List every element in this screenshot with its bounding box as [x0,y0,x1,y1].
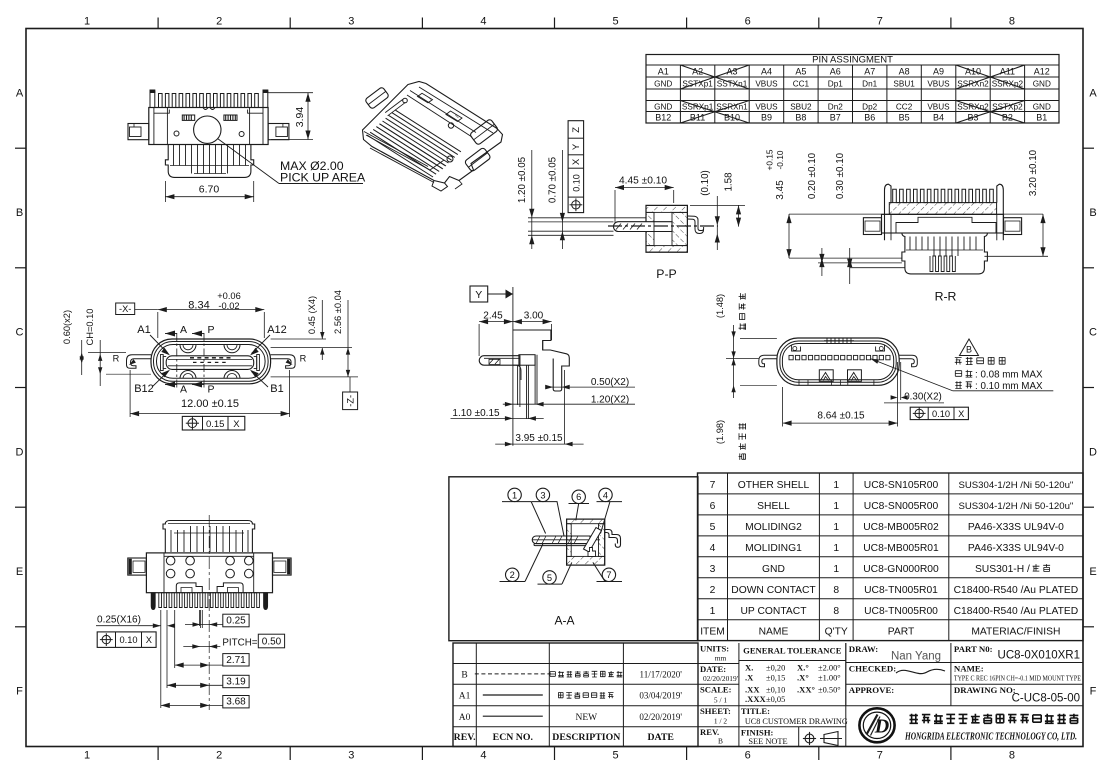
svg-text:±0,05: ±0,05 [766,695,785,704]
svg-text:±1.00°: ±1.00° [818,674,841,683]
svg-text:B1: B1 [1036,113,1047,123]
svg-text:B: B [1089,207,1096,219]
svg-text:.XX: .XX [745,685,760,695]
svg-text:5 / 1: 5 / 1 [714,696,727,705]
svg-text:TITLE:: TITLE: [741,706,770,716]
svg-text:X: X [146,635,152,645]
svg-text:SHEET:: SHEET: [700,706,731,716]
svg-text:Z: Z [571,127,582,133]
svg-text:CC2: CC2 [896,103,913,112]
svg-text:0.30(X2): 0.30(X2) [904,392,942,403]
svg-text:C: C [1089,327,1097,339]
svg-text:-X-: -X- [119,304,131,314]
svg-text:1: 1 [512,490,517,500]
svg-text:.XX°: .XX° [797,685,816,695]
svg-text:±0,15: ±0,15 [766,674,785,683]
svg-text:B7: B7 [830,113,841,123]
svg-text:X: X [958,409,964,419]
svg-text:B8: B8 [795,113,806,123]
svg-text:UC8-0X010XR1: UC8-0X010XR1 [998,650,1080,662]
svg-text:B9: B9 [761,113,772,123]
svg-text:1: 1 [710,606,716,617]
svg-text:5: 5 [613,750,619,762]
svg-text:1: 1 [833,564,839,575]
svg-text:SEE NOTE: SEE NOTE [748,737,787,746]
svg-text:1.20 ±0.05: 1.20 ±0.05 [517,156,528,203]
svg-text:.X°: .X° [797,673,809,683]
svg-text:B1: B1 [270,383,283,395]
svg-text:0.30 ±0.10: 0.30 ±0.10 [835,152,846,199]
svg-text:3.68: 3.68 [226,697,246,708]
svg-text:VBUS: VBUS [755,79,778,88]
svg-text:: 0.08 mm MAX: : 0.08 mm MAX [975,370,1043,381]
svg-text:PITCH=: PITCH= [222,638,257,649]
svg-text:F: F [1090,686,1097,698]
svg-text:A7: A7 [864,66,875,76]
svg-text:X.°: X.° [797,663,809,673]
svg-text:B: B [718,736,723,745]
svg-text:MOLIDING2: MOLIDING2 [745,522,802,533]
svg-text:DRAW:: DRAW: [849,644,878,654]
svg-text:5: 5 [547,573,552,583]
svg-text:11/17/2020': 11/17/2020' [640,669,683,679]
svg-text:Nan Yang: Nan Yang [891,651,941,663]
svg-text:1: 1 [84,750,90,762]
svg-text:7: 7 [710,480,716,491]
svg-text:DATE: DATE [647,732,674,743]
svg-text:6: 6 [745,16,751,28]
svg-text:X: X [571,158,582,165]
svg-text:B: B [16,207,23,219]
svg-text:A4: A4 [761,66,772,76]
svg-text:GND: GND [762,564,785,575]
svg-text:C18400-R540 /Au PLATED: C18400-R540 /Au PLATED [954,585,1079,596]
svg-text:1: 1 [833,543,839,554]
svg-text:NAME: NAME [759,627,789,638]
svg-text:1.10 ±0.15: 1.10 ±0.15 [452,408,500,419]
svg-text:12.00 ±0.15: 12.00 ±0.15 [181,398,239,410]
svg-text:A-A: A-A [554,614,574,628]
svg-text:(1.98): (1.98) [715,420,725,444]
svg-text:1: 1 [833,501,839,512]
svg-text:3: 3 [348,750,354,762]
svg-text:3.95 ±0.15: 3.95 ±0.15 [515,433,563,444]
svg-text:02/20/2019': 02/20/2019' [639,712,682,722]
svg-text:SUS301-H /: SUS301-H / [975,564,1030,575]
svg-text:A: A [16,87,24,99]
svg-text:3: 3 [540,490,545,500]
svg-text:4: 4 [603,490,608,500]
svg-text:B: B [966,345,972,355]
svg-text:1: 1 [833,522,839,533]
svg-text:A6: A6 [830,66,841,76]
svg-text:Y: Y [571,143,582,150]
svg-text:B12: B12 [655,113,671,123]
svg-text:: 0.10 mm MAX: : 0.10 mm MAX [975,381,1043,392]
svg-text:4.45 ±0.10: 4.45 ±0.10 [619,176,667,187]
svg-text:3.19: 3.19 [226,677,246,688]
svg-text:2.56 ±0.04: 2.56 ±0.04 [333,290,343,334]
svg-text:6: 6 [745,750,751,762]
svg-text:A: A [180,384,187,396]
svg-text:REV.: REV. [700,727,719,737]
svg-text:PIN ASSINGMENT: PIN ASSINGMENT [812,54,893,65]
svg-text:A5: A5 [795,66,806,76]
svg-text:UP CONTACT: UP CONTACT [741,606,808,617]
svg-text:2: 2 [216,750,222,762]
svg-text:-0.10: -0.10 [775,150,785,169]
svg-text:(1.48): (1.48) [715,294,725,318]
svg-text:A12: A12 [267,324,287,336]
svg-text:A12: A12 [1034,66,1050,76]
svg-text:MATERIAC/FINISH: MATERIAC/FINISH [971,627,1060,638]
svg-text:B12: B12 [134,383,154,395]
svg-text:HONGRIDA ELECTRONIC TECHNOLOGY: HONGRIDA ELECTRONIC TECHNOLOGY CO, LTD. [904,732,1077,743]
svg-text:R-R: R-R [935,290,957,304]
svg-text:P: P [208,324,215,336]
svg-text:3.20 ±0.10: 3.20 ±0.10 [1028,149,1039,196]
svg-text:C: C [16,327,24,339]
svg-text:0.15: 0.15 [206,419,225,430]
svg-text:PART: PART [888,627,915,638]
svg-text:SCALE:: SCALE: [700,685,732,695]
svg-text:CC1: CC1 [793,79,810,88]
svg-text:C-UC8-05-00: C-UC8-05-00 [1012,693,1080,705]
svg-text:(0.10): (0.10) [700,170,711,196]
svg-text:8: 8 [1009,16,1015,28]
svg-text:A0: A0 [459,713,471,723]
svg-text:MOLIDING1: MOLIDING1 [745,543,802,554]
svg-text:D: D [1089,446,1097,458]
svg-text:SUS304-1/2H /Ni 50-120u": SUS304-1/2H /Ni 50-120u" [958,501,1073,512]
svg-text:A1: A1 [459,692,471,702]
svg-text:1: 1 [84,16,90,28]
svg-text:8: 8 [1009,750,1015,762]
svg-text:6: 6 [710,501,716,512]
svg-text:SBU2: SBU2 [790,103,812,112]
svg-text:E: E [16,566,23,578]
svg-text:NAME:: NAME: [954,664,984,674]
svg-text:SSTXp2: SSTXp2 [992,103,1023,112]
svg-text:8.64 ±0.15: 8.64 ±0.15 [817,411,865,422]
svg-text:0.50: 0.50 [262,637,282,648]
svg-text:GND: GND [654,103,672,112]
svg-text:UC8-MB005R02: UC8-MB005R02 [863,522,939,533]
svg-text:SUS304-1/2H /Ni 50-120u": SUS304-1/2H /Ni 50-120u" [958,480,1073,491]
svg-text:03/04/2019': 03/04/2019' [639,691,682,701]
svg-text:3.45: 3.45 [775,180,786,200]
svg-text:R: R [113,354,120,364]
svg-text:5: 5 [710,522,716,533]
svg-text:OTHER SHELL: OTHER SHELL [738,480,810,491]
svg-text:0.45 (X4): 0.45 (X4) [307,296,317,334]
svg-text:X.: X. [745,663,753,673]
svg-text:A1: A1 [658,66,669,76]
svg-text:±0,10: ±0,10 [766,686,785,695]
svg-text:1.20(X2): 1.20(X2) [591,394,629,405]
svg-text:7: 7 [606,570,611,580]
svg-text:8: 8 [833,606,839,617]
svg-text:02/20/2019': 02/20/2019' [703,674,739,683]
svg-text:UC8-TN005R01: UC8-TN005R01 [864,585,938,596]
svg-text:D: D [16,446,24,458]
svg-text:0.10: 0.10 [572,174,582,192]
svg-text:GND: GND [1033,79,1051,88]
svg-text:mm: mm [715,653,727,662]
svg-text:0.70 ±0.05: 0.70 ±0.05 [548,156,559,203]
svg-text:.XXX: .XXX [745,694,767,704]
svg-text:APPROVE:: APPROVE: [849,685,895,695]
svg-text:A9: A9 [933,66,944,76]
svg-text:REV.: REV. [454,732,476,743]
svg-text:3: 3 [710,564,716,575]
svg-text:SHELL: SHELL [757,501,790,512]
svg-text:SBU1: SBU1 [893,79,915,88]
svg-text:0.20 ±0.10: 0.20 ±0.10 [807,152,818,199]
svg-text:2.71: 2.71 [226,655,246,666]
svg-text:X: X [233,419,240,430]
svg-text:6.70: 6.70 [199,183,220,195]
svg-text:CHECKED:: CHECKED: [849,664,896,674]
svg-text:2: 2 [216,16,222,28]
svg-text:5: 5 [613,16,619,28]
svg-text:Dn2: Dn2 [828,103,843,112]
svg-text:F: F [16,686,23,698]
svg-text:ITEM: ITEM [700,627,725,638]
svg-text:DATE:: DATE: [700,664,726,674]
svg-text:VBUS: VBUS [927,103,950,112]
svg-text:7: 7 [877,16,883,28]
svg-text:UC8-MB005R01: UC8-MB005R01 [863,543,939,554]
svg-text:PART N0:: PART N0: [954,644,993,654]
svg-text:UC8 CUSTOMER DRAWING: UC8 CUSTOMER DRAWING [745,717,848,726]
svg-text:B4: B4 [933,113,944,123]
svg-text:8: 8 [833,585,839,596]
svg-text:Q'TY: Q'TY [825,627,848,638]
svg-text:ECN NO.: ECN NO. [493,732,534,743]
svg-text:+0.06: +0.06 [217,291,241,301]
svg-text:UNITS:: UNITS: [700,643,729,653]
svg-text:-Z-: -Z- [346,395,356,407]
svg-text:UC8-TN005R00: UC8-TN005R00 [864,606,938,617]
svg-text:SSRXn1: SSRXn1 [716,103,748,112]
svg-text:GENERAL TOLERANCE: GENERAL TOLERANCE [743,646,842,656]
svg-text:4: 4 [710,543,716,554]
svg-text:3.94: 3.94 [294,107,306,128]
svg-text:GND: GND [654,79,672,88]
svg-text:2: 2 [510,570,515,580]
svg-text:±2.00°: ±2.00° [818,664,841,673]
svg-text:3: 3 [348,16,354,28]
svg-text:A8: A8 [899,66,910,76]
svg-text:0.10: 0.10 [119,635,137,645]
svg-text:A1: A1 [137,324,150,336]
svg-text:P-P: P-P [656,267,677,281]
svg-text:1.58: 1.58 [724,172,735,192]
svg-text:B: B [461,670,467,680]
svg-text:E: E [1089,566,1096,578]
svg-text:UC8-SN005R00: UC8-SN005R00 [864,501,939,512]
svg-text:0.10: 0.10 [932,409,950,419]
svg-text:P: P [208,384,215,396]
svg-text:PICK UP AREA: PICK UP AREA [280,171,366,185]
svg-text:B6: B6 [864,113,875,123]
svg-text:6: 6 [576,492,581,502]
svg-text:PA46-X33S UL94V-0: PA46-X33S UL94V-0 [968,522,1064,533]
svg-text:DOWN CONTACT: DOWN CONTACT [731,585,816,596]
svg-text:C18400-R540 /Au PLATED: C18400-R540 /Au PLATED [954,606,1079,617]
svg-text:B5: B5 [899,113,910,123]
svg-text:DESCRIPTION: DESCRIPTION [552,732,620,743]
svg-text:NEW: NEW [575,713,597,723]
svg-text:4: 4 [480,16,486,28]
svg-text:A: A [180,324,187,336]
svg-text:VBUS: VBUS [927,79,950,88]
svg-text:R: R [300,354,307,364]
svg-text:FINISH:: FINISH: [741,728,774,738]
svg-text:VBUS: VBUS [755,103,778,112]
svg-text:0.50(X2): 0.50(X2) [591,377,629,388]
svg-text:A: A [1089,87,1097,99]
svg-text:TYPE C REC 16PIN CH=-0.1 MID M: TYPE C REC 16PIN CH=-0.1 MID MOUNT TYPE [954,675,1082,683]
svg-text:Dp1: Dp1 [828,79,843,88]
svg-text:0.60(x2): 0.60(x2) [62,310,72,344]
svg-text:Dn1: Dn1 [862,79,877,88]
svg-text:7: 7 [877,750,883,762]
svg-text:Y: Y [475,289,482,301]
svg-text:1: 1 [833,480,839,491]
svg-text:0.25: 0.25 [226,616,246,627]
svg-text:DRAWING NO:: DRAWING NO: [954,685,1016,695]
svg-text:±0.50°: ±0.50° [818,686,841,695]
svg-text:+0.15: +0.15 [765,149,775,170]
svg-text:PA46-X33S UL94V-0: PA46-X33S UL94V-0 [968,543,1064,554]
svg-text:UC8-SN105R00: UC8-SN105R00 [864,480,939,491]
svg-text:1 / 2: 1 / 2 [714,717,727,726]
svg-text:CH=0.10: CH=0.10 [85,309,95,346]
svg-text:GND: GND [1033,103,1051,112]
svg-text:0.25(X16): 0.25(X16) [97,614,141,625]
svg-text:3.00: 3.00 [524,310,544,321]
svg-text:UC8-GN000R00: UC8-GN000R00 [863,564,939,575]
svg-text:4: 4 [480,750,486,762]
svg-text:Dp2: Dp2 [862,103,877,112]
svg-text:±0,20: ±0,20 [766,664,785,673]
svg-text:2: 2 [710,585,716,596]
svg-text:.X: .X [745,673,754,683]
